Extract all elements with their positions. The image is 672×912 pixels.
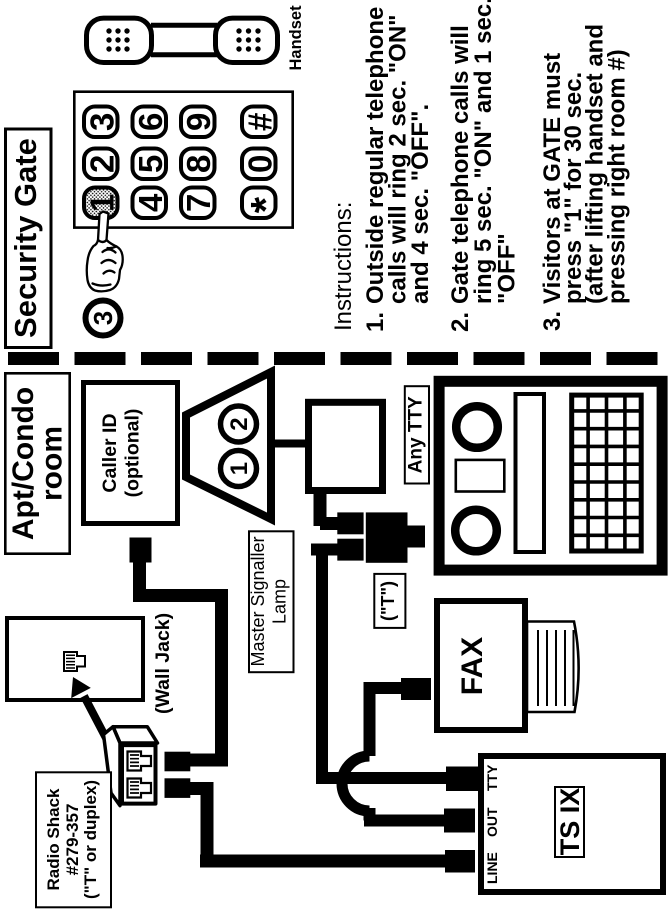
svg-text:Lamp: Lamp: [270, 579, 290, 624]
svg-text:("T"): ("T"): [378, 581, 398, 621]
svg-text:"OFF": "OFF": [494, 233, 521, 304]
svg-text:3.: 3.: [539, 311, 566, 331]
svg-text:3: 3: [83, 113, 120, 131]
svg-text:0: 0: [241, 155, 278, 173]
svg-text:9: 9: [180, 113, 217, 131]
svg-text:Master Signaller: Master Signaller: [248, 536, 268, 666]
svg-text:TS IX: TS IX: [555, 788, 585, 856]
svg-text:("T" or duplex): ("T" or duplex): [81, 780, 100, 899]
svg-text:1: 1: [226, 462, 253, 475]
svg-text:OUT: OUT: [484, 807, 500, 837]
svg-text:Caller ID: Caller ID: [99, 413, 121, 492]
svg-text:pressing right room #): pressing right room #): [604, 49, 631, 304]
svg-text:Handset: Handset: [287, 5, 305, 71]
svg-text:5: 5: [132, 155, 169, 173]
svg-text:(Wall Jack): (Wall Jack): [152, 613, 174, 714]
svg-text:#: #: [241, 113, 278, 131]
svg-text:Instructions:: Instructions:: [330, 202, 357, 331]
svg-text:2.: 2.: [447, 312, 474, 332]
svg-text:FAX: FAX: [456, 637, 489, 695]
svg-text:LINE: LINE: [484, 852, 500, 884]
svg-text:TTY: TTY: [484, 764, 500, 791]
svg-text:2: 2: [83, 155, 120, 173]
svg-text:1.: 1.: [362, 312, 389, 332]
svg-text:7: 7: [180, 194, 217, 212]
svg-text:Security Gate: Security Gate: [8, 138, 43, 338]
svg-text:8: 8: [180, 155, 217, 173]
svg-text:and 4 sec. "OFF".: and 4 sec. "OFF".: [407, 104, 434, 304]
svg-text:2: 2: [226, 417, 253, 430]
svg-text:room: room: [36, 426, 69, 501]
svg-text:#279-357: #279-357: [63, 804, 82, 876]
svg-text:*: *: [242, 196, 289, 213]
svg-text:1: 1: [83, 194, 120, 212]
svg-text:4: 4: [132, 193, 169, 212]
svg-text:(optional): (optional): [122, 409, 144, 498]
svg-text:3: 3: [88, 311, 118, 325]
svg-text:6: 6: [132, 113, 169, 131]
svg-text:Any TTY: Any TTY: [406, 396, 427, 473]
svg-text:Radio Shack: Radio Shack: [44, 788, 63, 891]
